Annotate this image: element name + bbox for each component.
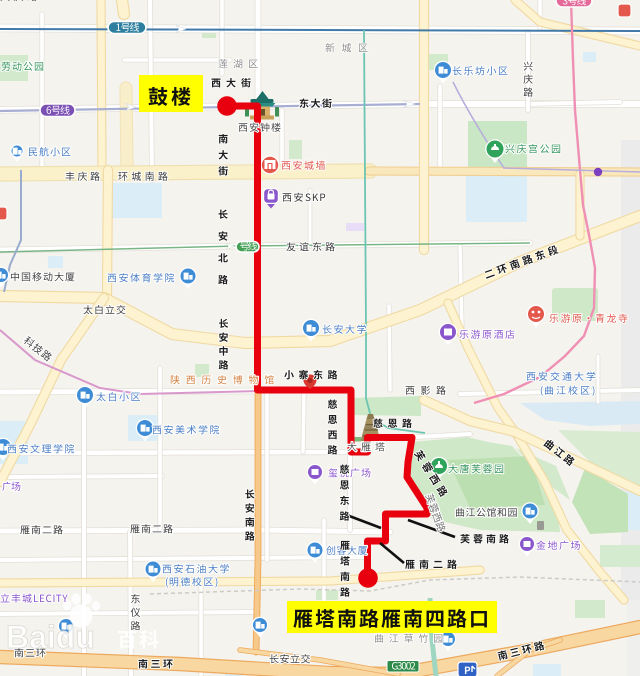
- svg-text:Baidu: Baidu: [6, 619, 95, 655]
